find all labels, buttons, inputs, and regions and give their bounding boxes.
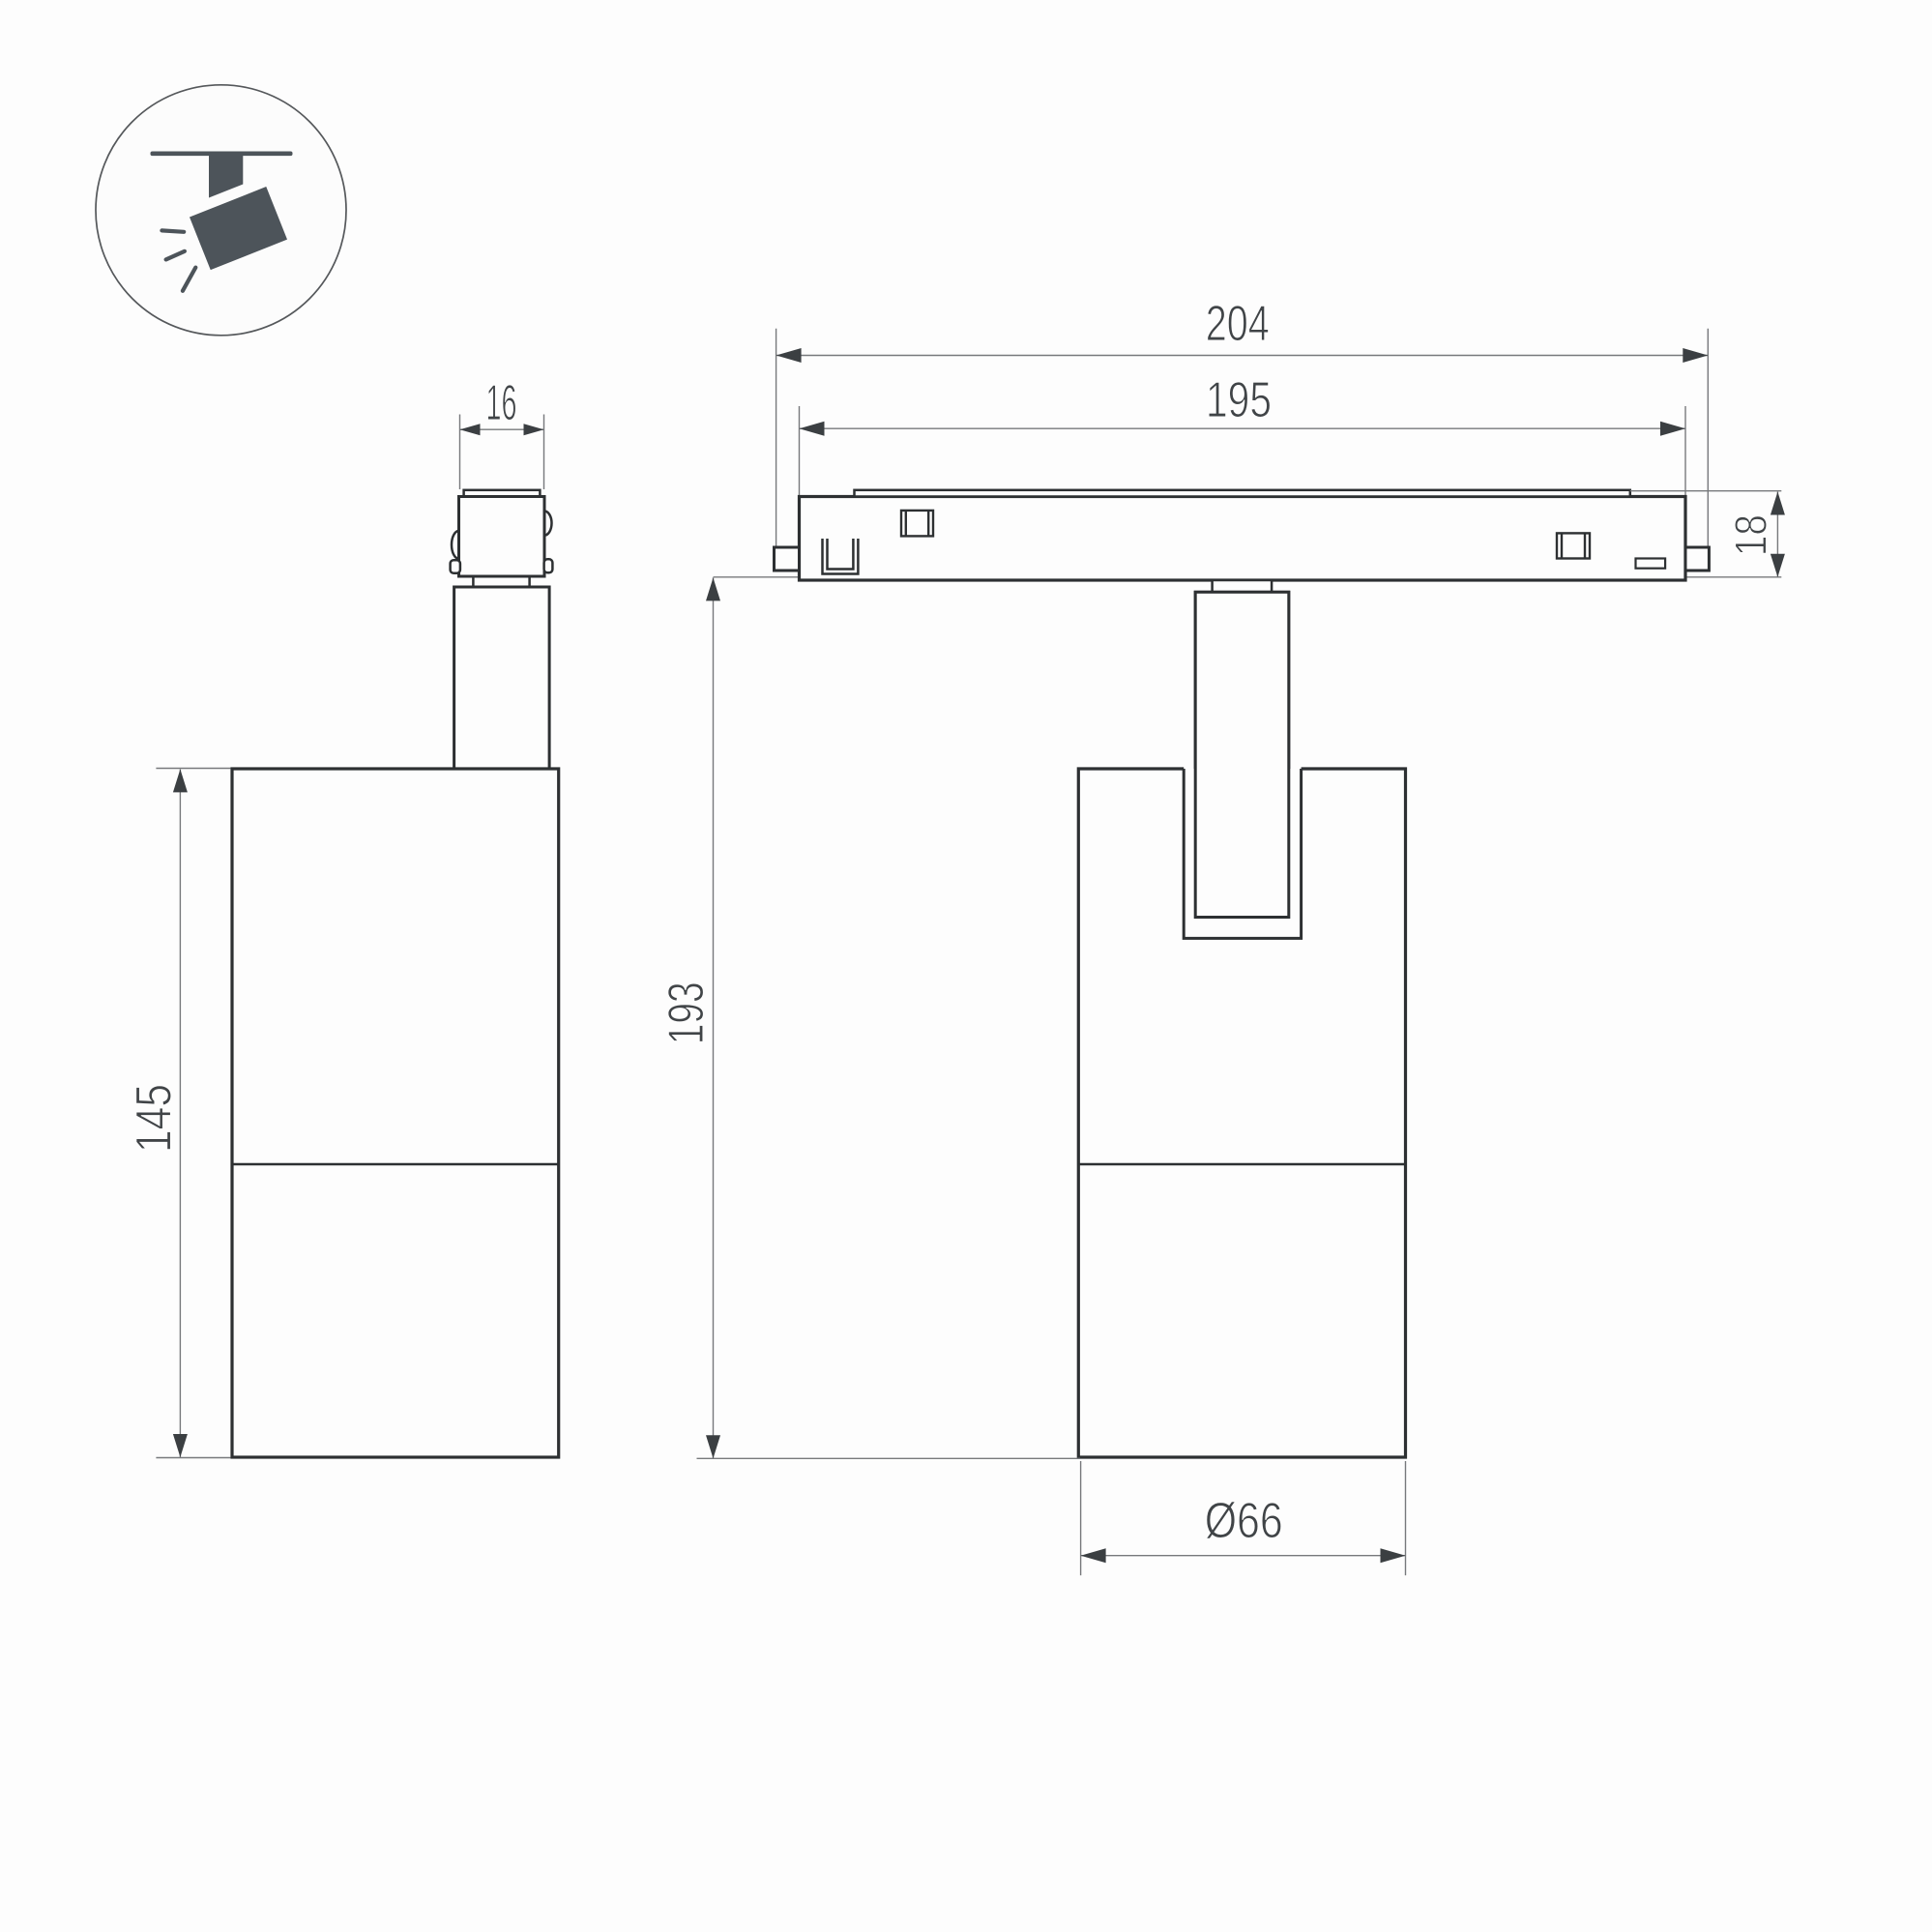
svg-text:145: 145 <box>127 1084 183 1153</box>
svg-text:18: 18 <box>1726 514 1776 556</box>
svg-text:Ø66: Ø66 <box>1205 1493 1283 1549</box>
svg-text:195: 195 <box>1206 372 1272 428</box>
svg-text:193: 193 <box>659 981 715 1044</box>
svg-text:204: 204 <box>1206 296 1270 352</box>
svg-text:16: 16 <box>486 375 517 431</box>
